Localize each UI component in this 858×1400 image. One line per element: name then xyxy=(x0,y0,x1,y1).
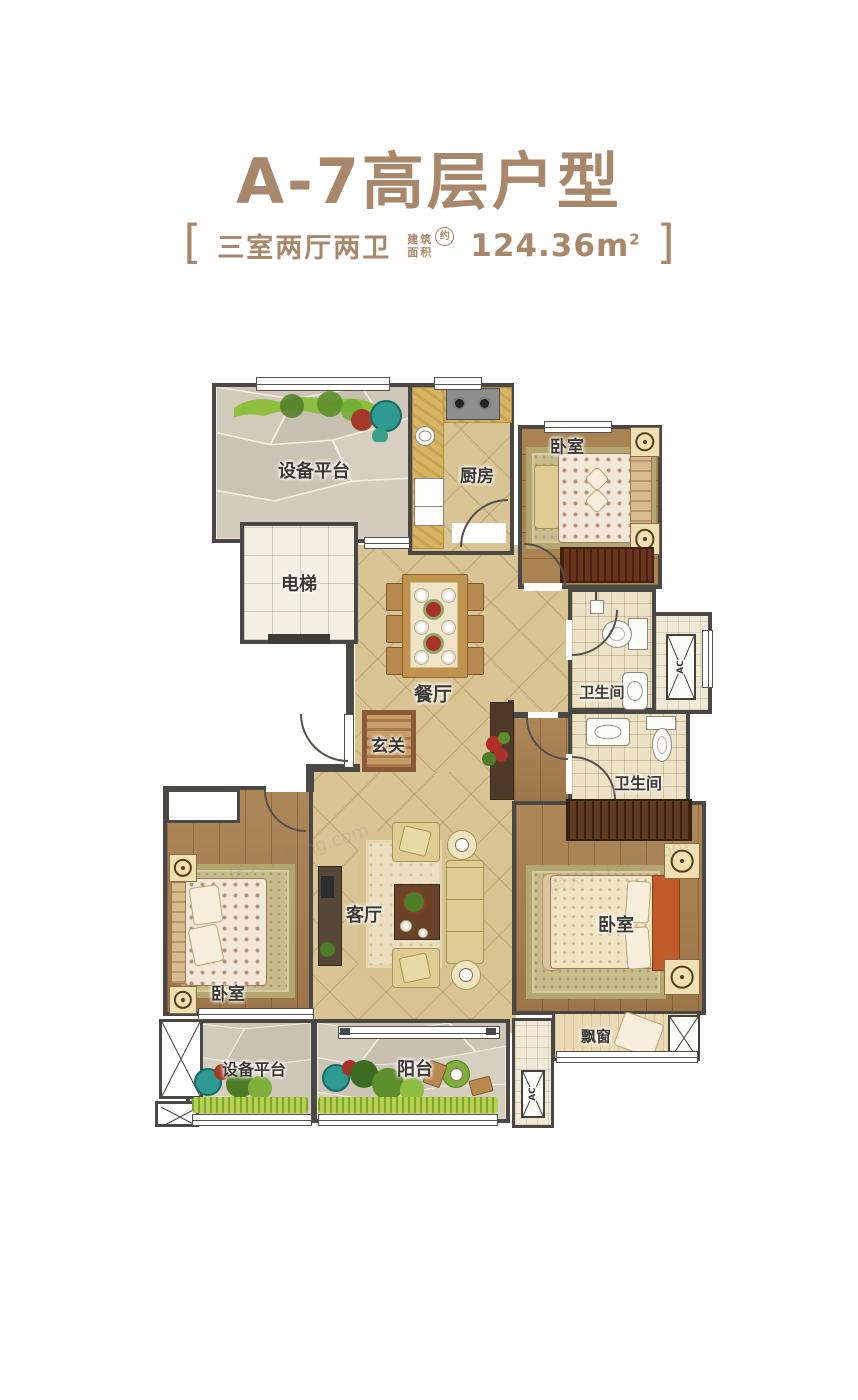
ac-platform-box: AC xyxy=(666,634,696,700)
plant-pot xyxy=(404,892,424,912)
bedroom-left-niche xyxy=(166,789,240,823)
plants-top xyxy=(234,390,406,442)
room-label-bathroom-2: 卫生间 xyxy=(614,770,662,794)
nightstand xyxy=(630,427,660,457)
area-label-line1: 建筑 xyxy=(407,233,433,246)
elevator-door xyxy=(268,634,330,644)
toilet-bowl xyxy=(652,728,672,762)
window xyxy=(544,421,612,433)
pillow xyxy=(189,884,224,926)
floor-plan-page: A-7高层户型 [ 三室两厅两卫 建筑面积 约 124.36m2 ] xyxy=(0,0,858,1400)
entry-door-arc xyxy=(300,714,348,762)
side-table xyxy=(451,960,481,990)
window xyxy=(702,630,713,688)
side-table xyxy=(447,830,477,860)
nightstand xyxy=(169,986,197,1014)
area-label-line2: 面积 xyxy=(407,246,433,259)
room-label-balcony: 阳台 xyxy=(397,1055,433,1081)
room-label-elevator: 电梯 xyxy=(281,570,317,596)
area-label: 建筑面积 约 xyxy=(407,233,454,259)
room-label-bathroom-1: 卫生间 xyxy=(579,682,624,703)
flower-red xyxy=(494,748,508,762)
nightstand xyxy=(169,854,197,882)
window xyxy=(192,1114,312,1126)
plate xyxy=(414,620,429,635)
window xyxy=(318,1114,498,1126)
nightstand xyxy=(664,959,700,995)
bracket-right: ] xyxy=(657,223,675,262)
room-label-bedroom-master: 卧室 xyxy=(598,911,634,937)
header: A-7高层户型 [ 三室两厅两卫 建筑面积 约 124.36m2 ] xyxy=(0,148,858,265)
grass-strip xyxy=(318,1097,498,1113)
flower-centerpiece xyxy=(426,636,441,651)
cup xyxy=(400,920,412,932)
flower-centerpiece xyxy=(426,602,441,617)
page-title: A-7高层户型 xyxy=(0,148,858,216)
grass-strip xyxy=(192,1097,308,1113)
plate xyxy=(414,650,429,665)
approx-badge: 约 xyxy=(435,227,454,246)
plate xyxy=(441,588,456,603)
bathroom-sink xyxy=(622,672,648,710)
tv-set xyxy=(321,876,334,898)
armchair xyxy=(392,822,440,862)
sliding-door-block xyxy=(340,1028,350,1035)
room-label-bay-window: 飘窗 xyxy=(581,1026,611,1047)
bedroom-top-bench xyxy=(534,465,560,529)
bay-window-sill xyxy=(556,1051,698,1063)
room-label-bedroom-top: 卧室 xyxy=(550,433,584,458)
plant-pot xyxy=(320,942,335,957)
plate xyxy=(441,650,456,665)
flower-leaf xyxy=(498,732,510,744)
sofa xyxy=(446,860,484,964)
layout-label: 三室两厅两卫 xyxy=(217,226,391,265)
balcony-table xyxy=(442,1060,470,1088)
room-label-equipment-platform-bottom: 设备平台 xyxy=(222,1056,286,1080)
flower-leaf xyxy=(482,752,496,766)
bedroom-top-dresser xyxy=(560,547,654,583)
window xyxy=(434,377,482,390)
room-label-foyer: 玄关 xyxy=(371,732,405,757)
window xyxy=(256,377,390,391)
plate xyxy=(441,620,456,635)
wall-corridor-left xyxy=(346,642,354,718)
wall-entry-side xyxy=(306,764,314,792)
window xyxy=(198,1008,314,1020)
room-label-equipment-platform-top: 设备平台 xyxy=(278,457,350,483)
spec-row: [ 三室两厅两卫 建筑面积 约 124.36m2 ] xyxy=(0,226,858,265)
room-label-bedroom-left: 卧室 xyxy=(211,980,245,1005)
kitchen-sink xyxy=(415,426,435,446)
ac-marker-label: AC xyxy=(527,1087,539,1101)
room-label-dining: 餐厅 xyxy=(414,680,452,707)
master-bed-blanket xyxy=(652,875,680,971)
sliding-door-block xyxy=(486,1028,496,1035)
shower-stem xyxy=(595,592,597,600)
bathroom-sink xyxy=(586,718,630,746)
fridge xyxy=(414,478,444,526)
armchair xyxy=(392,948,440,988)
balcony-sliding-door xyxy=(338,1026,500,1039)
bracket-left: [ xyxy=(183,223,201,262)
window xyxy=(364,537,410,549)
room-label-kitchen: 厨房 xyxy=(460,462,494,487)
stove xyxy=(446,388,500,420)
ac-marker-label: AC xyxy=(675,660,687,674)
area-value: 124.36m2 xyxy=(470,228,640,264)
ac-platform-box-2: AC xyxy=(521,1070,545,1118)
plate xyxy=(414,588,429,603)
room-label-living: 客厅 xyxy=(346,901,382,927)
cup xyxy=(418,928,428,938)
